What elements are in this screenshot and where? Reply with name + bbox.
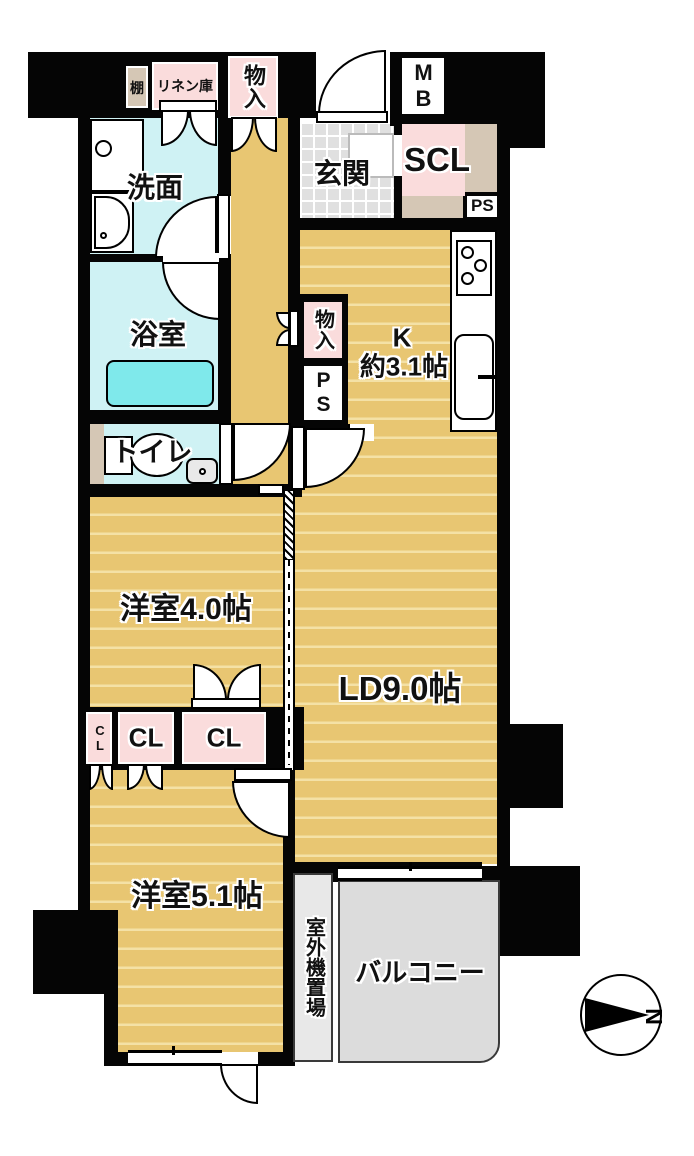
washroom-label: 洗面 <box>127 166 183 206</box>
cl-1-label: CL <box>129 723 164 754</box>
stove-burner-3 <box>461 272 474 285</box>
ps-kitchen-label: PS <box>311 369 335 417</box>
outdoor-unit-label: 室外機置場 <box>300 917 329 1017</box>
sliding-partition-stack <box>284 490 294 560</box>
scl-beige-strip <box>402 196 463 218</box>
shelf-label: 棚 <box>130 78 144 98</box>
top-right-step <box>508 126 545 148</box>
left-wall <box>78 118 90 912</box>
ld-window-tick <box>409 862 412 871</box>
vanity-sink <box>95 140 112 157</box>
shoe-closet-label: SCL <box>404 141 470 179</box>
scl-doorway <box>394 135 402 176</box>
washroom-hall-wall <box>218 118 231 196</box>
western4-threshold <box>258 484 284 495</box>
living-dining-label: LD9.0帖 <box>339 662 462 710</box>
kitchen-faucet <box>478 375 497 379</box>
entrance-bottom-wall <box>288 218 510 230</box>
right-wall-bump <box>506 724 563 808</box>
toilet-label: トイレ <box>112 431 193 470</box>
sliding-partition-track <box>288 560 290 765</box>
storage-hall-door-bar <box>289 310 299 347</box>
bath-toilet-wall <box>90 410 231 424</box>
floor-plan: MB 玄関 SCL PS 棚 リネン庫 物入 洗面 浴室 トイレ K 約3 <box>0 0 694 1156</box>
entrance-door-leaf <box>316 111 388 123</box>
storage-hall-label: 物入 <box>309 309 338 351</box>
top-wall-band <box>28 52 545 118</box>
stove-burner-1 <box>461 246 474 259</box>
western5-left-block <box>33 910 118 994</box>
western5-label: 洋室5.1帖 <box>131 871 263 915</box>
western5-door-leaf <box>234 768 292 781</box>
cl-small-label: CL <box>93 723 108 753</box>
kitchen-label-2: 約3.1帖 <box>360 347 448 384</box>
toilet-side-strip <box>90 424 104 484</box>
western5-floor-lower <box>118 912 285 1052</box>
cl-2-label: CL <box>207 723 242 754</box>
bathtub <box>106 360 214 407</box>
toilet-basin-dot <box>199 468 206 475</box>
scl-left-wall-bottom <box>394 176 402 218</box>
linen-label: リネン庫 <box>157 76 213 96</box>
meter-box-label: MB <box>410 60 436 112</box>
ps-entrance-label: PS <box>471 196 494 216</box>
western5-window-tick <box>172 1046 175 1055</box>
entrance-label: 玄関 <box>314 152 370 192</box>
washing-machine-dot <box>100 232 107 239</box>
western5-window <box>128 1050 222 1066</box>
washroom-door-leaf <box>217 194 230 260</box>
toilet-door-leaf <box>219 423 233 485</box>
stove-burner-2 <box>474 259 487 272</box>
ld-door-leaf <box>291 426 305 490</box>
western5-exit-door-arc <box>220 1064 258 1104</box>
compass-north-label: N <box>640 1008 667 1025</box>
western4-label: 洋室4.0帖 <box>120 584 252 628</box>
scl-left-wall-top <box>394 122 402 135</box>
bathroom-label: 浴室 <box>130 313 186 353</box>
balcony-label: バルコニー <box>355 953 484 990</box>
storage-top-label: 物入 <box>237 64 269 110</box>
